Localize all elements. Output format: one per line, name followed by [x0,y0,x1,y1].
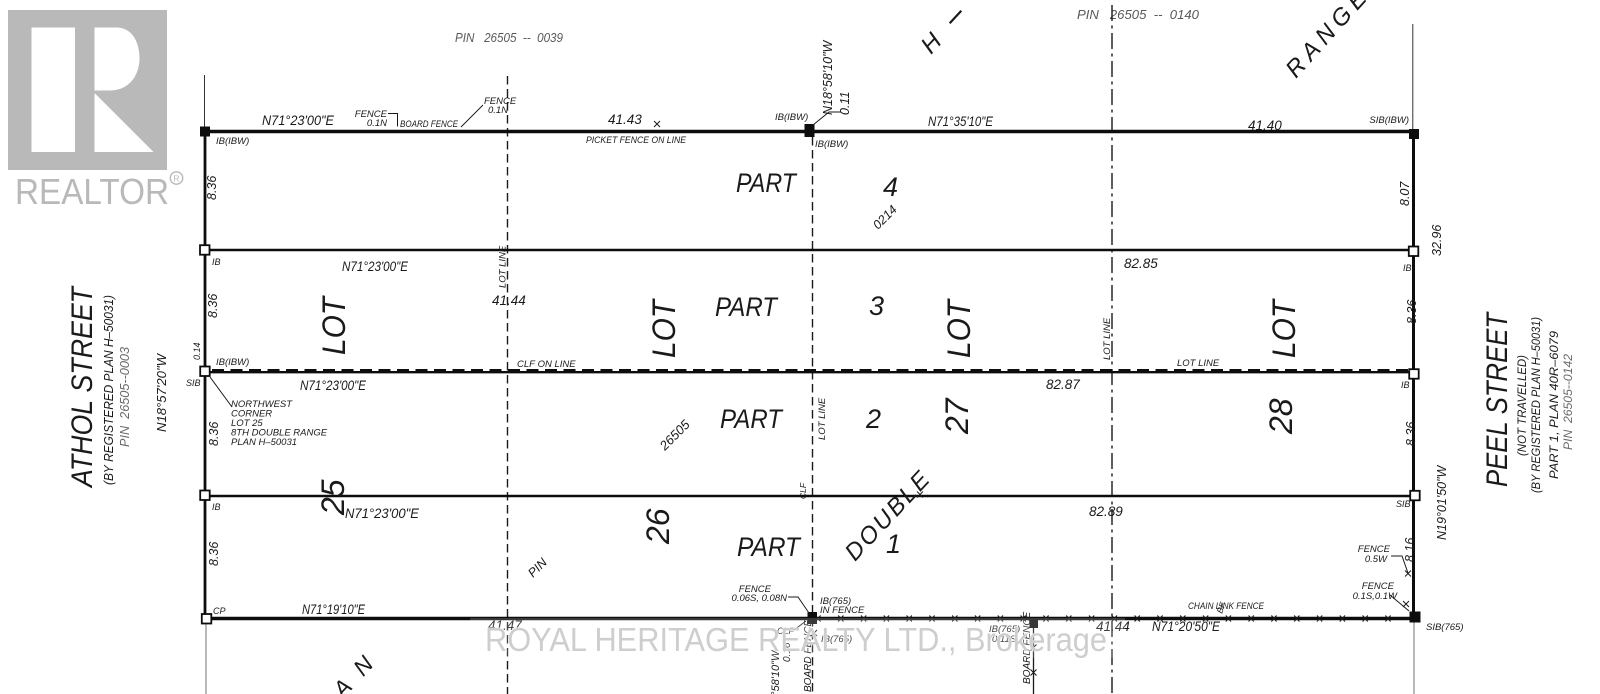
svg-text:IB: IB [1401,380,1410,390]
svg-text:PIN 26505--0142: PIN 26505--0142 [1563,353,1575,450]
svg-text:RANGE: RANGE [1280,0,1376,83]
svg-text:LOT LINE: LOT LINE [817,397,828,440]
svg-text:PEEL STREET: PEEL STREET [1481,311,1514,487]
svg-text:IB(IBW): IB(IBW) [775,112,808,123]
svg-text:LOT: LOT [316,295,352,355]
svg-text:CP: CP [213,606,226,616]
svg-text:PIN 26505 -- 0140: PIN 26505 -- 0140 [1077,7,1200,22]
svg-text:N71°20'50"E: N71°20'50"E [1152,619,1221,634]
svg-text:82.89: 82.89 [1089,504,1123,519]
svg-text:26: 26 [640,508,676,545]
svg-text:IN FENCE: IN FENCE [820,605,865,616]
svg-text:41.43: 41.43 [608,112,642,127]
svg-text:8.36: 8.36 [1404,422,1418,446]
svg-text:PART: PART [720,404,784,434]
svg-text:N71°19'10"E: N71°19'10"E [302,602,366,617]
svg-text:2: 2 [865,404,881,434]
svg-text:LOT: LOT [1266,298,1302,358]
svg-text:H: H [916,28,948,60]
svg-text:0.06S, 0.08N: 0.06S, 0.08N [732,593,788,604]
svg-text:LOT: LOT [646,298,682,358]
svg-text:PART 1, PLAN 40R–6079: PART 1, PLAN 40R–6079 [1549,330,1561,479]
svg-text:LOT LINE: LOT LINE [1177,358,1220,369]
svg-text:IB(IBW): IB(IBW) [815,139,848,150]
svg-text:26505: 26505 [656,416,693,453]
svg-text:IB(IBW): IB(IBW) [216,357,249,368]
svg-text:0.5W: 0.5W [1365,554,1388,565]
svg-text:PIN: PIN [525,555,550,580]
svg-text:8.36: 8.36 [205,176,219,200]
svg-text:CLF: CLF [798,482,808,499]
svg-text:82.87: 82.87 [1046,377,1080,392]
svg-text:0.14: 0.14 [192,342,202,360]
svg-text:SIB: SIB [1396,499,1411,509]
svg-text:BOARD FENCE: BOARD FENCE [400,119,459,130]
svg-text:8.07: 8.07 [1398,181,1412,206]
svg-text:8.16: 8.16 [1403,538,1417,562]
svg-text:N19°01'50"W: N19°01'50"W [1435,464,1449,540]
svg-text:(BY REGISTERED PLAN H–50031): (BY REGISTERED PLAN H–50031) [1531,317,1543,493]
svg-text:PIN 26505 -- 0039: PIN 26505 -- 0039 [455,30,563,45]
svg-text:IB: IB [212,502,221,512]
svg-text:8.36: 8.36 [206,294,220,318]
svg-text:IB: IB [1403,263,1412,273]
svg-text:REALTOR: REALTOR [15,171,169,212]
svg-text:R: R [173,174,179,184]
svg-text:CLF ON LINE: CLF ON LINE [517,359,576,370]
svg-text:0214: 0214 [870,203,900,233]
svg-text:8.36: 8.36 [1405,300,1419,324]
svg-text:N18°57'20"W: N18°57'20"W [155,353,169,432]
svg-text:ATHOL STREET: ATHOL STREET [66,285,99,489]
svg-text:N18°58'10"W: N18°58'10"W [821,39,835,115]
svg-text:SIB(765): SIB(765) [1426,622,1464,633]
svg-text:N71°23'00"E: N71°23'00"E [345,506,420,521]
svg-text:N71°23'00"E: N71°23'00"E [342,259,409,274]
svg-text:41.40: 41.40 [1248,118,1282,133]
svg-text:PART: PART [715,292,779,322]
svg-text:IB: IB [212,257,221,267]
svg-text:N71°23'00"E: N71°23'00"E [300,378,367,393]
svg-text:PIN 26505--0003: PIN 26505--0003 [118,347,132,447]
svg-text:32.96: 32.96 [1430,225,1444,256]
svg-text:LOT LINE: LOT LINE [1102,317,1113,360]
svg-text:8.36: 8.36 [207,542,221,566]
svg-text:PART: PART [737,532,802,562]
svg-text:4: 4 [883,172,898,202]
svg-text:SIB(IBW): SIB(IBW) [1369,115,1409,126]
svg-text:0.1N: 0.1N [488,105,508,116]
svg-text:8.36: 8.36 [207,422,221,446]
svg-text:LOT LINE: LOT LINE [498,245,509,288]
svg-text:N71°35'10"E: N71°35'10"E [928,114,994,129]
svg-text:(BY REGISTERED PLAN H–50031): (BY REGISTERED PLAN H–50031) [101,295,116,485]
svg-text:N71°23'00"E: N71°23'00"E [262,113,335,128]
svg-text:41.44: 41.44 [492,293,526,308]
svg-text:SIB: SIB [186,378,201,388]
svg-text:3: 3 [869,291,884,321]
svg-text:27: 27 [939,397,975,435]
svg-text:PLAN H–50031: PLAN H–50031 [231,437,297,448]
svg-text:PART: PART [736,168,798,198]
svg-text:0.11: 0.11 [838,92,852,115]
svg-text:ROYAL HERITAGE REALTY LTD., Br: ROYAL HERITAGE REALTY LTD., Brokerage [485,621,1107,658]
svg-text:PICKET FENCE ON LINE: PICKET FENCE ON LINE [586,135,687,146]
svg-text:LOT: LOT [941,298,977,358]
svg-text:IB(IBW): IB(IBW) [216,136,249,147]
svg-text:0.1N: 0.1N [367,118,387,129]
svg-text:82.85: 82.85 [1124,256,1158,271]
svg-text:28: 28 [1263,398,1299,435]
svg-text:A N: A N [326,648,381,694]
svg-text:(NOT TRAVELLED): (NOT TRAVELLED) [1517,355,1529,456]
